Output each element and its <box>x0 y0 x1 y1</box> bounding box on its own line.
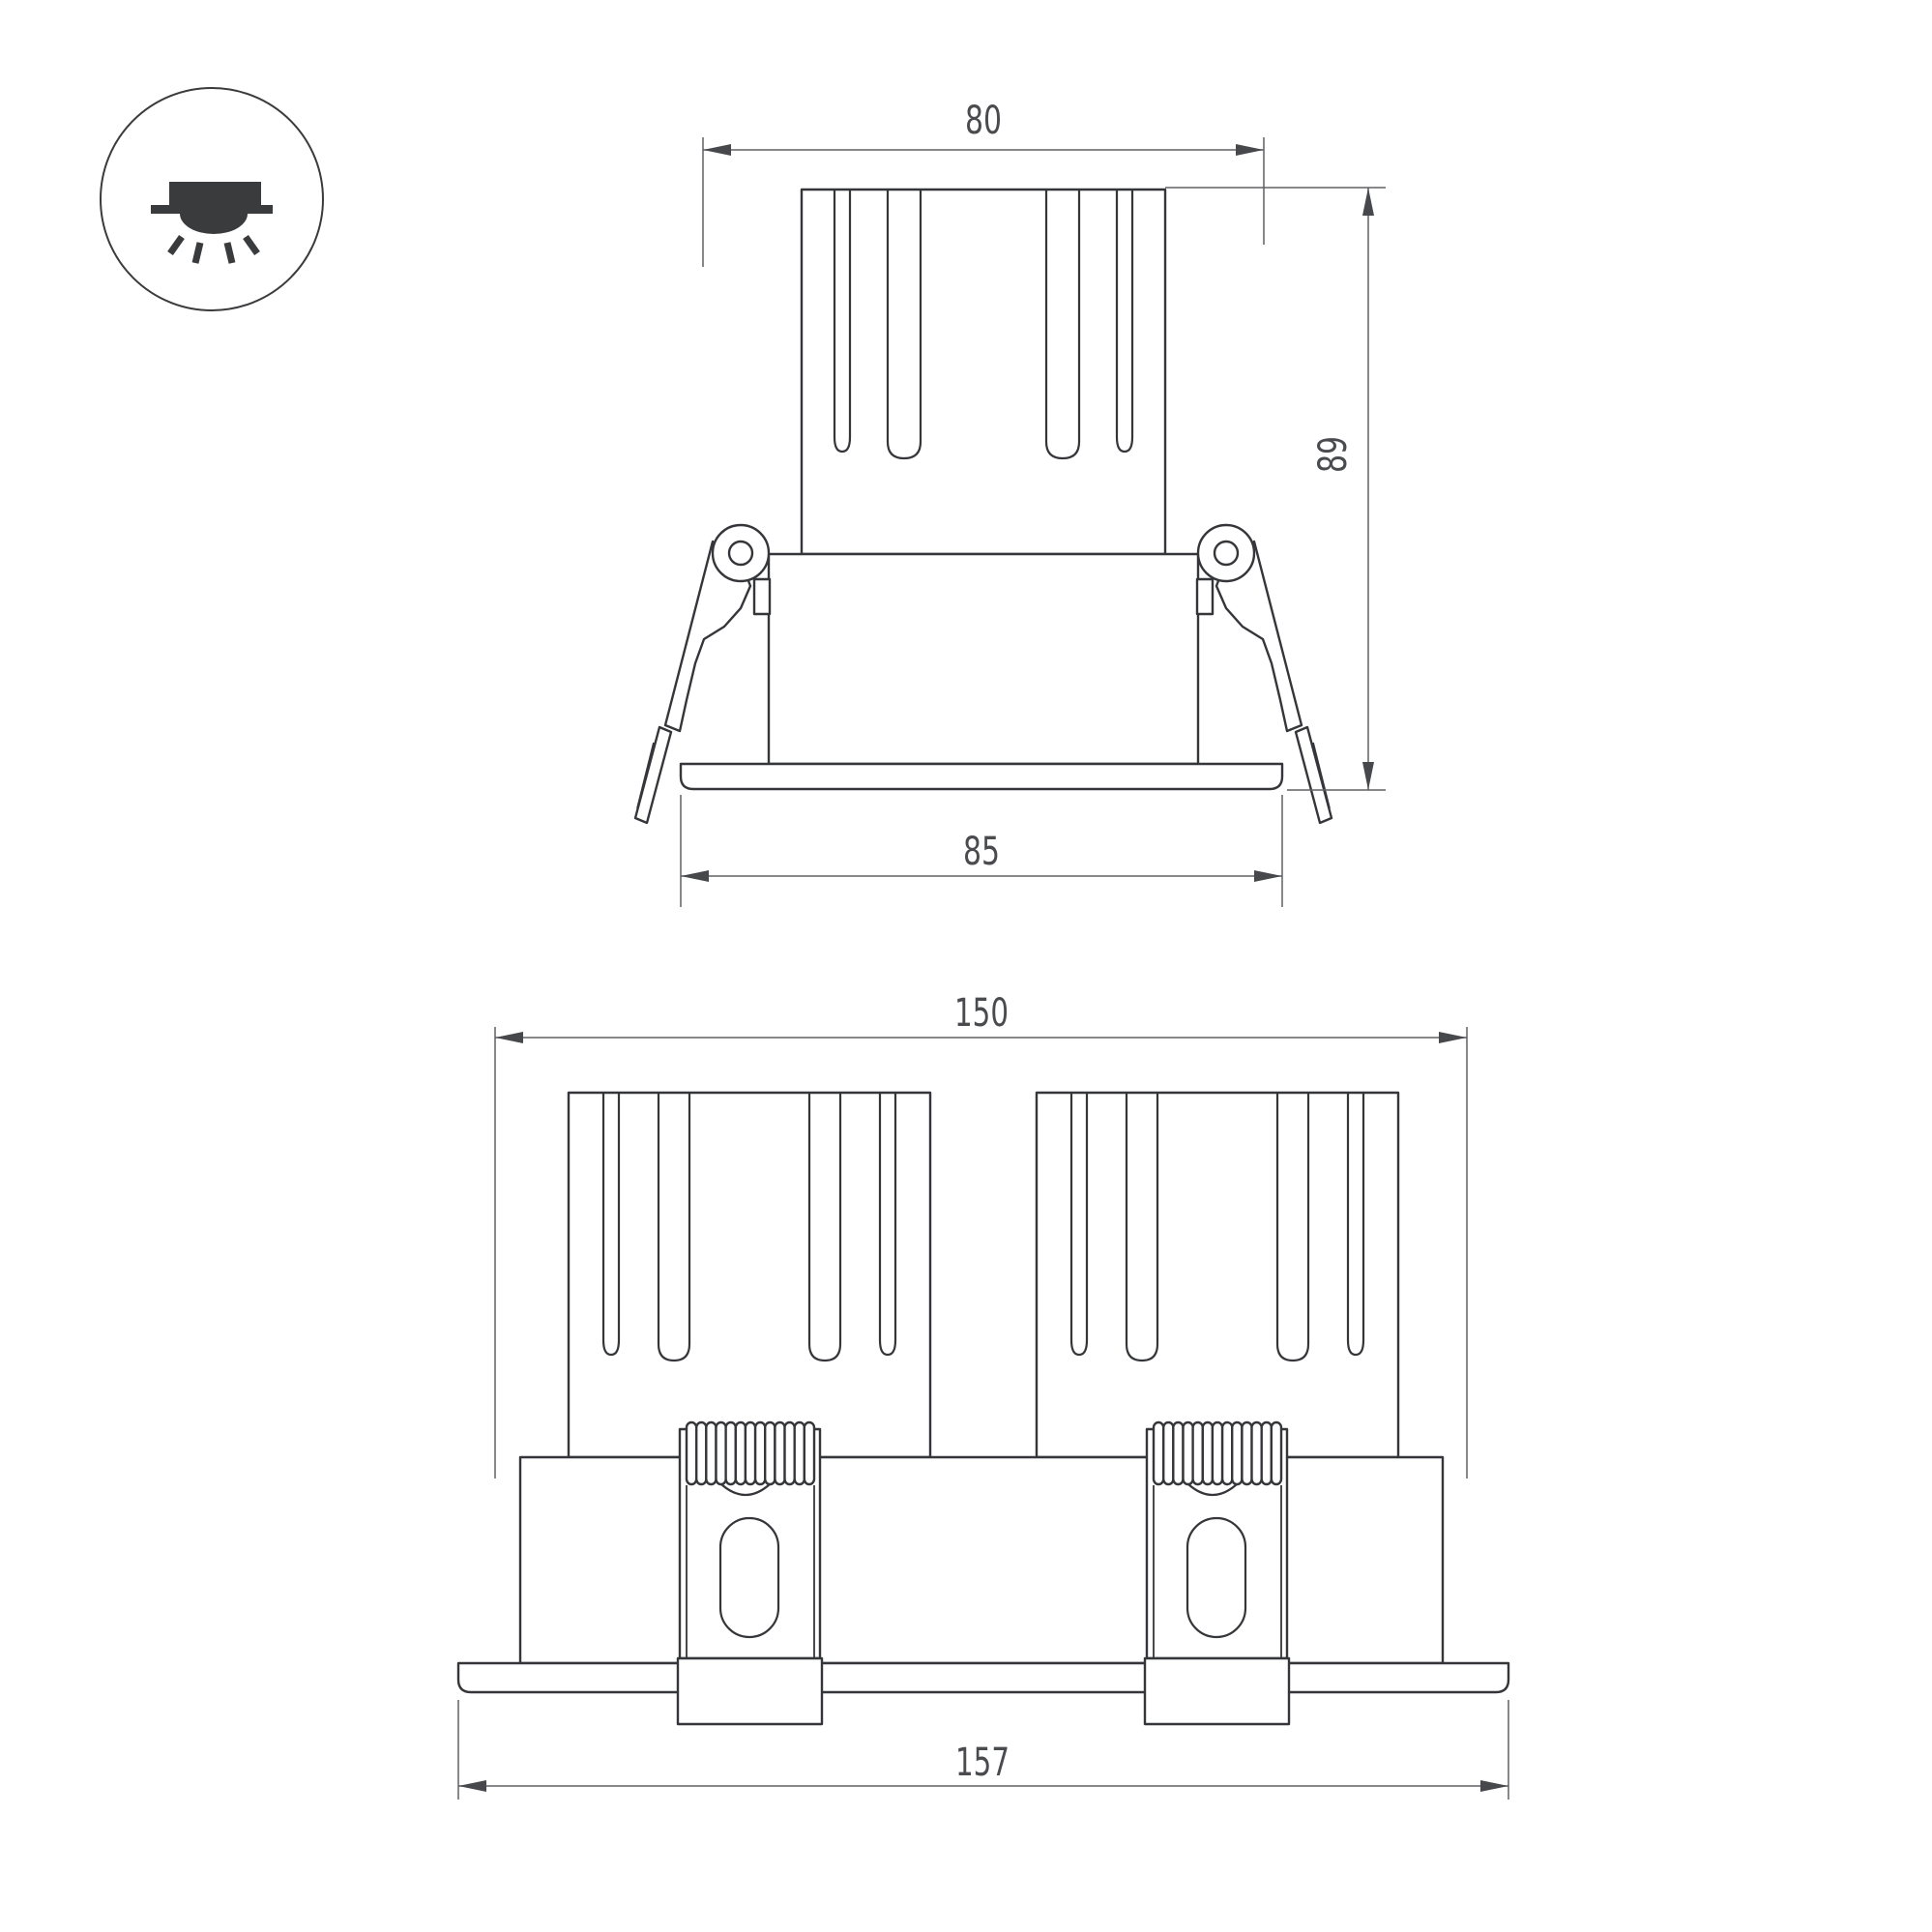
arrowhead-left <box>495 1032 523 1043</box>
icon-light-ray <box>195 243 200 263</box>
technical-drawing: 80 89 <box>0 0 1932 1932</box>
housing-body-double <box>520 1457 1443 1663</box>
dimension-flange-width: 157 <box>458 1700 1508 1800</box>
double-module-view: 150 <box>458 991 1508 1800</box>
icon-light-dome <box>180 214 248 234</box>
housing-body <box>769 554 1198 764</box>
arrowhead-down <box>1362 762 1374 790</box>
trim-flange <box>681 764 1282 789</box>
clip-pivot-hole <box>729 542 752 565</box>
arrowhead-left <box>681 870 709 882</box>
spring-mount-assembly-right <box>1145 1422 1289 1724</box>
mount-foot <box>678 1658 822 1724</box>
heatsink-left <box>569 1093 930 1457</box>
dim-label-150: 150 <box>954 991 1009 1036</box>
dim-label-89: 89 <box>1311 436 1356 473</box>
coil-spring <box>687 1422 814 1484</box>
arrowhead-left <box>703 144 731 156</box>
trim-flange-double <box>458 1663 1508 1692</box>
dim-label-80: 80 <box>965 99 1002 143</box>
dimension-flange-width: 85 <box>681 795 1282 907</box>
spring-mount-assembly-left <box>678 1422 822 1724</box>
clip-blade <box>635 727 671 823</box>
recessed-downlight-icon <box>101 88 323 310</box>
arrowhead-right <box>1439 1032 1467 1043</box>
heatsink-body <box>802 190 1165 554</box>
heatsink-right <box>1037 1093 1398 1457</box>
icon-light-ray <box>170 237 182 253</box>
icon-trim <box>151 205 273 214</box>
arrowhead-left <box>458 1780 486 1792</box>
icon-light-ray <box>246 237 257 253</box>
icon-light-ray <box>227 243 232 263</box>
dim-label-157: 157 <box>955 1741 1010 1785</box>
drawing-sheet: 80 89 <box>0 0 1932 1932</box>
arrowhead-right <box>1254 870 1282 882</box>
icon-housing <box>169 182 261 207</box>
arrowhead-up <box>1362 188 1374 216</box>
arrowhead-right <box>1480 1780 1508 1792</box>
arrowhead-right <box>1236 144 1264 156</box>
clip-tab <box>754 579 770 614</box>
dim-label-85: 85 <box>963 830 1000 874</box>
single-module-view: 80 89 <box>635 99 1386 907</box>
